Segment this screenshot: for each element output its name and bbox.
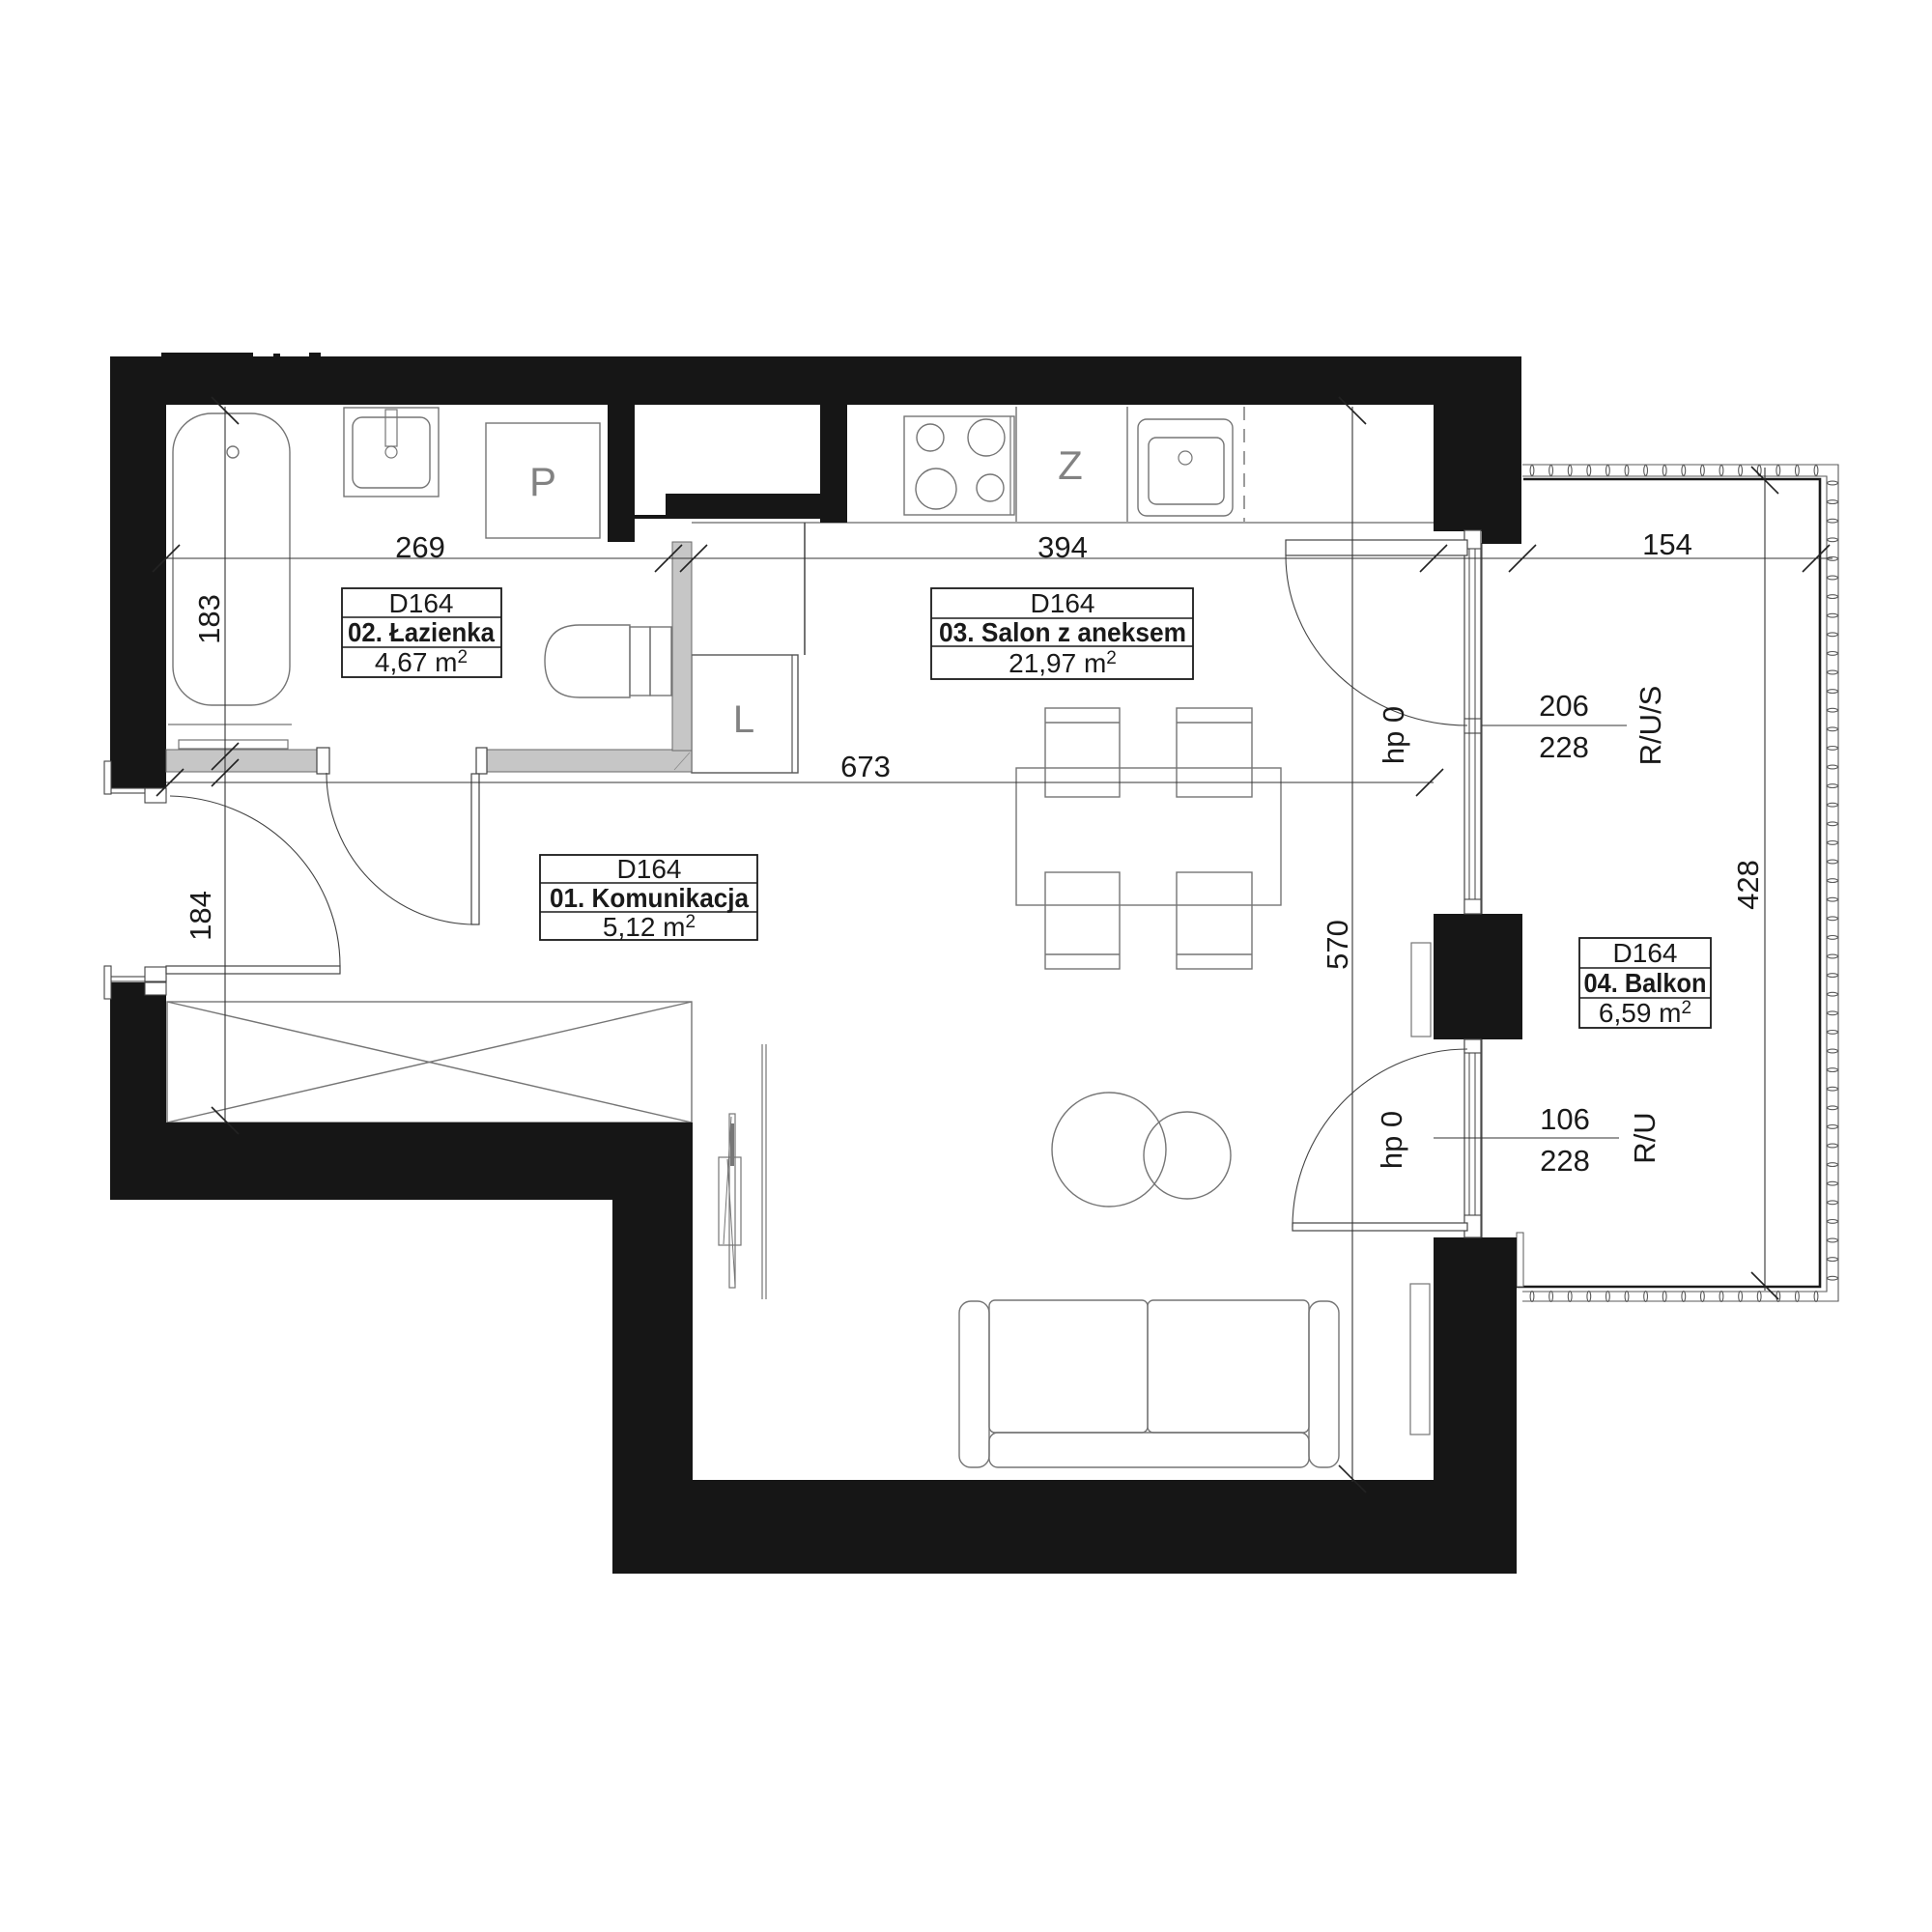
svg-text:154: 154 (1642, 527, 1692, 561)
svg-text:D164: D164 (1031, 588, 1095, 618)
svg-text:L: L (733, 698, 754, 741)
svg-text:hp 0: hp 0 (1377, 706, 1410, 764)
svg-text:428: 428 (1731, 860, 1765, 910)
svg-text:P: P (529, 459, 556, 504)
svg-text:R/U: R/U (1628, 1112, 1662, 1163)
svg-text:D164: D164 (617, 854, 682, 884)
svg-text:02. Łazienka: 02. Łazienka (348, 617, 495, 647)
svg-text:21,97 m2: 21,97 m2 (1009, 648, 1117, 678)
svg-text:228: 228 (1540, 1144, 1590, 1178)
svg-text:673: 673 (840, 750, 891, 783)
svg-text:269: 269 (395, 530, 445, 564)
svg-text:R/U/S: R/U/S (1634, 686, 1667, 766)
svg-text:D164: D164 (1613, 938, 1678, 968)
svg-text:228: 228 (1539, 730, 1589, 764)
svg-text:5,12 m2: 5,12 m2 (603, 912, 696, 942)
svg-text:206: 206 (1539, 689, 1589, 723)
svg-text:394: 394 (1037, 530, 1088, 564)
svg-text:106: 106 (1540, 1102, 1590, 1136)
svg-text:04. Balkon: 04. Balkon (1584, 968, 1707, 998)
svg-text:570: 570 (1321, 920, 1354, 970)
svg-text:184: 184 (184, 891, 217, 941)
svg-text:D164: D164 (389, 588, 454, 618)
svg-text:hp 0: hp 0 (1375, 1111, 1408, 1169)
svg-text:183: 183 (192, 594, 226, 644)
svg-text:6,59 m2: 6,59 m2 (1599, 998, 1691, 1028)
svg-text:4,67 m2: 4,67 m2 (375, 647, 468, 677)
svg-text:03. Salon z aneksem: 03. Salon z aneksem (939, 617, 1186, 647)
svg-text:Z: Z (1058, 442, 1083, 488)
svg-text:01. Komunikacja: 01. Komunikacja (550, 883, 749, 913)
